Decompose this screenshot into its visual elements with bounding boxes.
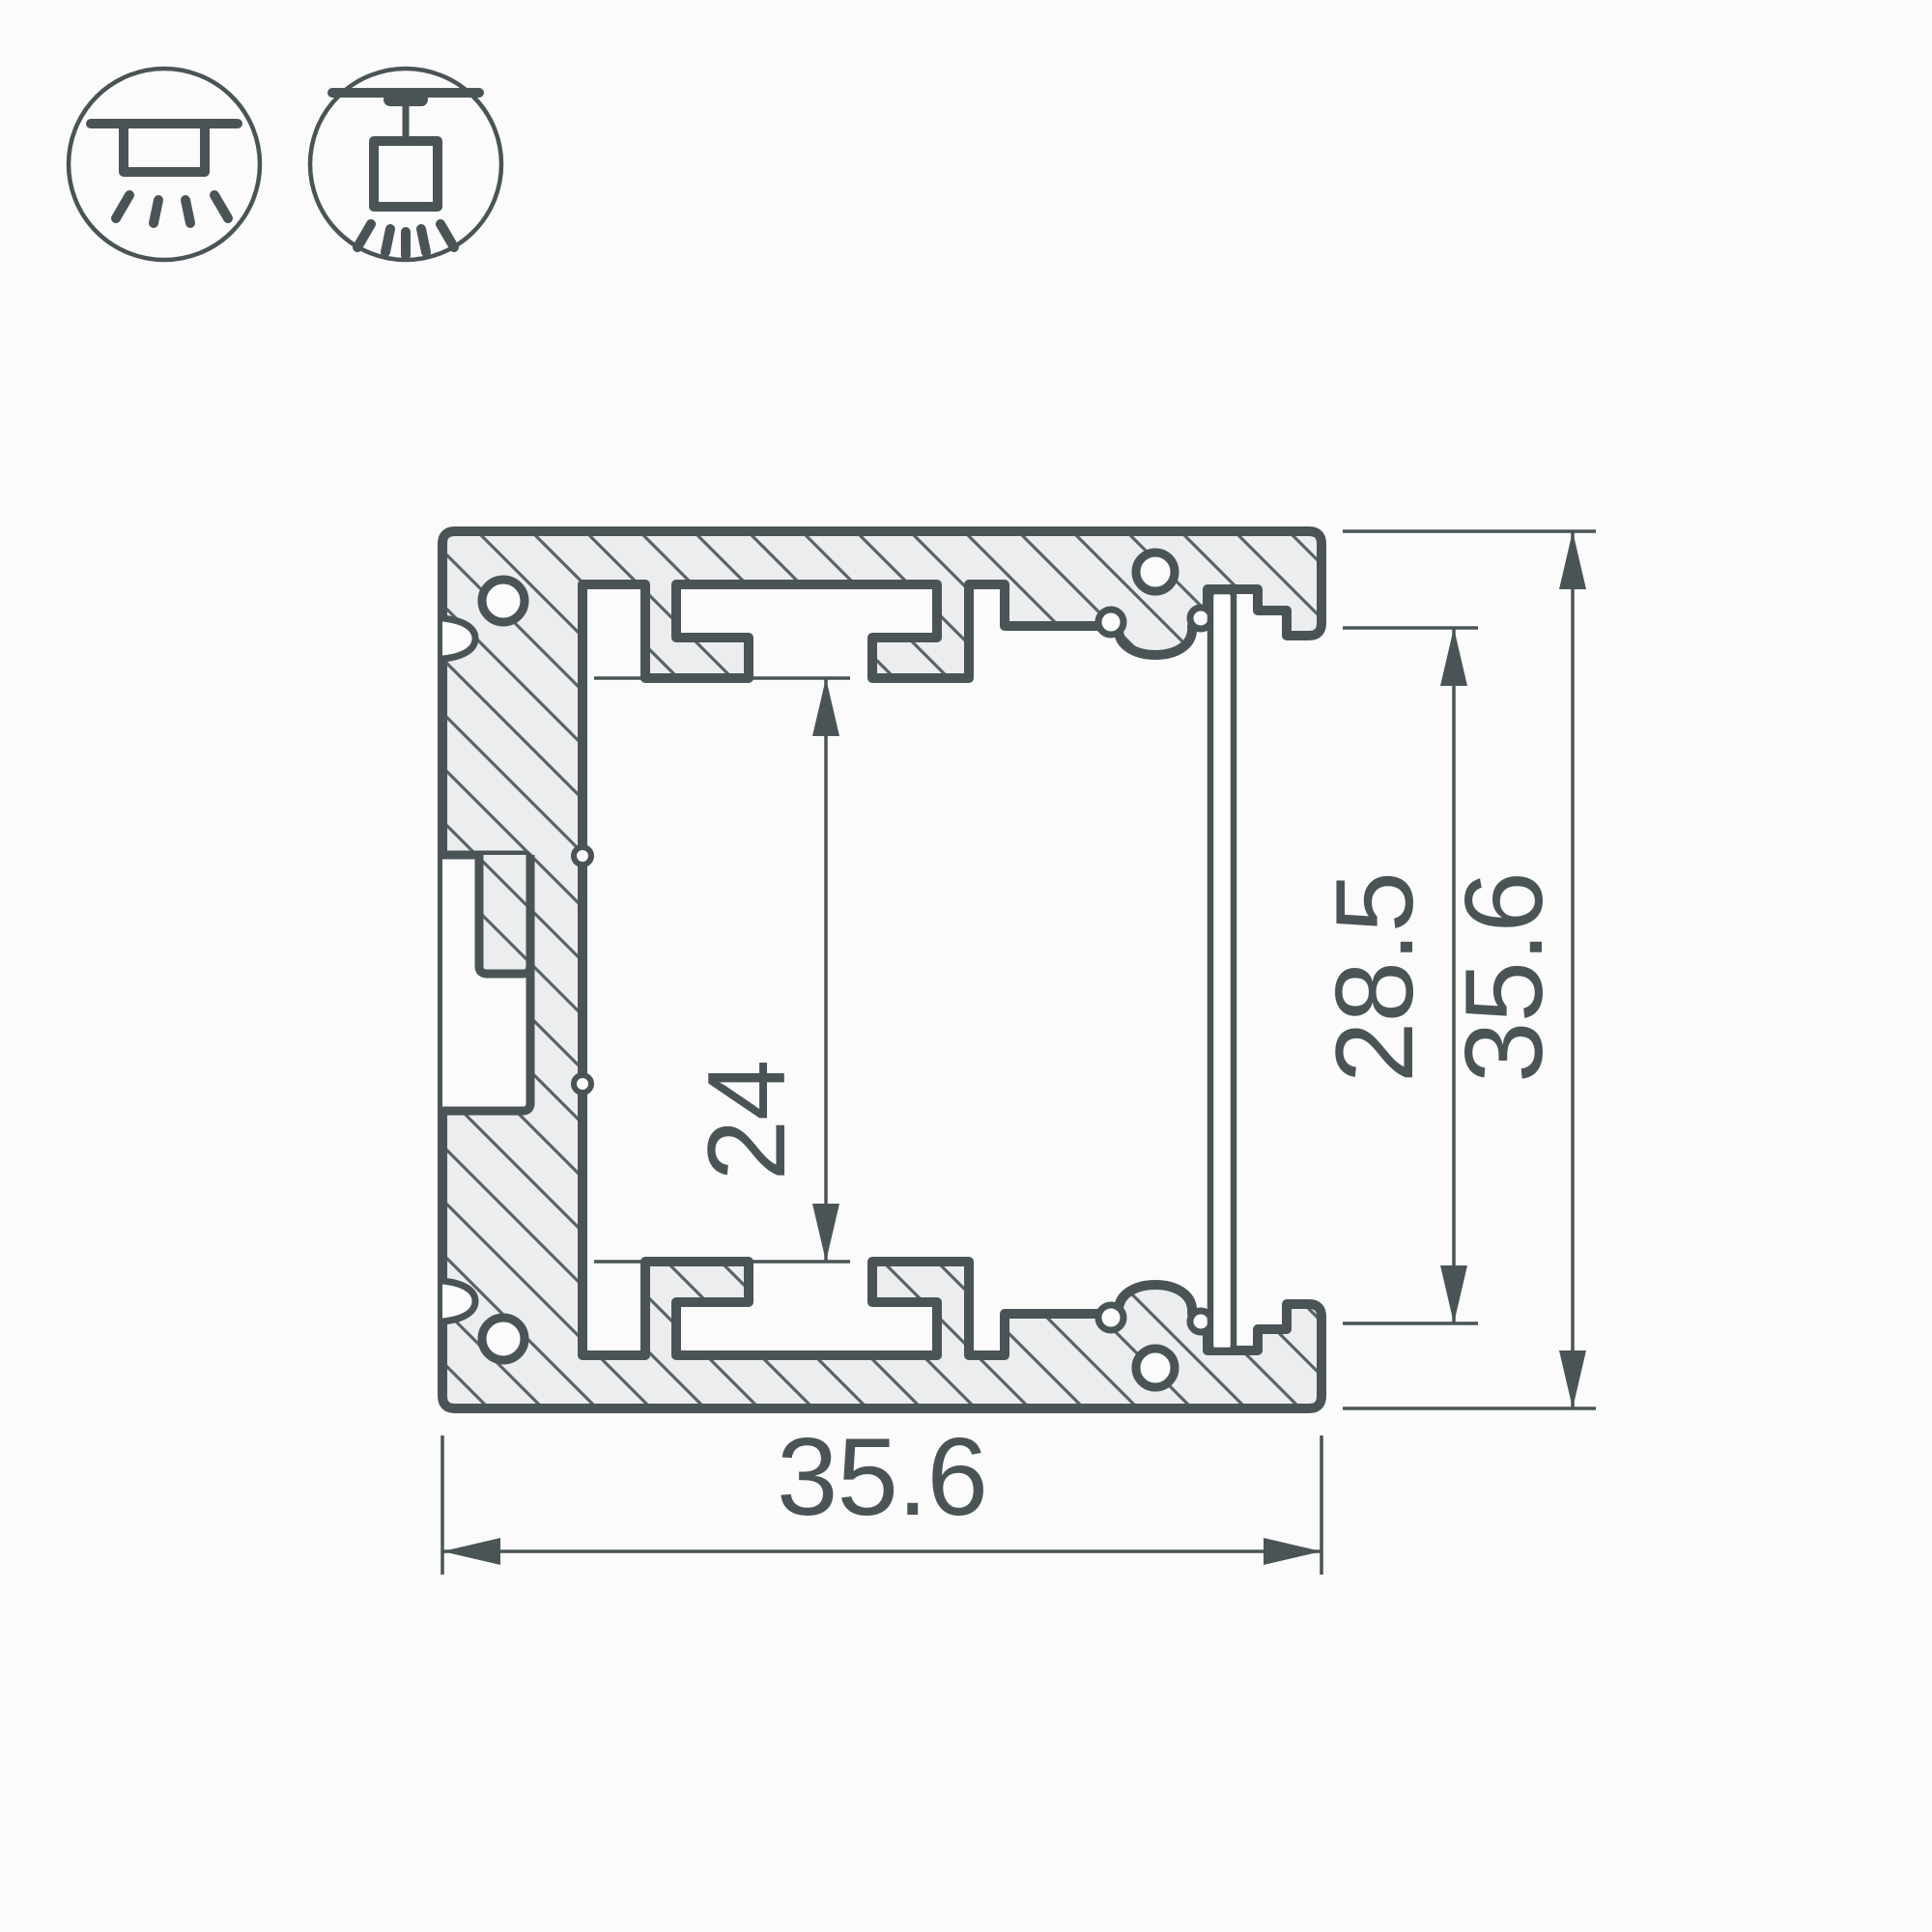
profile-cross-section [442, 531, 1321, 1408]
notch-bottom-right-a [1098, 1305, 1123, 1330]
cavity-height-label: 24 [686, 1061, 809, 1181]
technical-drawing: 24 28.5 35.6 35.6 [0, 0, 1932, 1932]
left-groove-tongue [479, 855, 530, 974]
inner-face-nick-upper [574, 847, 591, 865]
diffuser-plate [1210, 591, 1234, 1350]
overall-height-label: 35.6 [1443, 872, 1566, 1083]
inner-face-nick-lower [574, 1075, 591, 1093]
opening-height-label: 28.5 [1314, 872, 1436, 1083]
edge-notch-bottom-left [442, 1281, 475, 1321]
screw-channel-top-left [482, 580, 525, 622]
surface-mount-light-icon [69, 69, 260, 260]
screw-channel-bottom-right [1136, 1349, 1175, 1387]
edge-notch-top-left [442, 618, 475, 659]
pendant-mount-light-icon [310, 69, 501, 260]
notch-top-right-a [1098, 610, 1123, 635]
screw-channel-top-right [1136, 553, 1175, 591]
technical-drawing-page: 24 28.5 35.6 35.6 [0, 0, 1932, 1932]
overall-width-label: 35.6 [777, 1416, 987, 1539]
screw-channel-bottom-left [482, 1318, 525, 1360]
profile-body [442, 531, 1321, 1408]
